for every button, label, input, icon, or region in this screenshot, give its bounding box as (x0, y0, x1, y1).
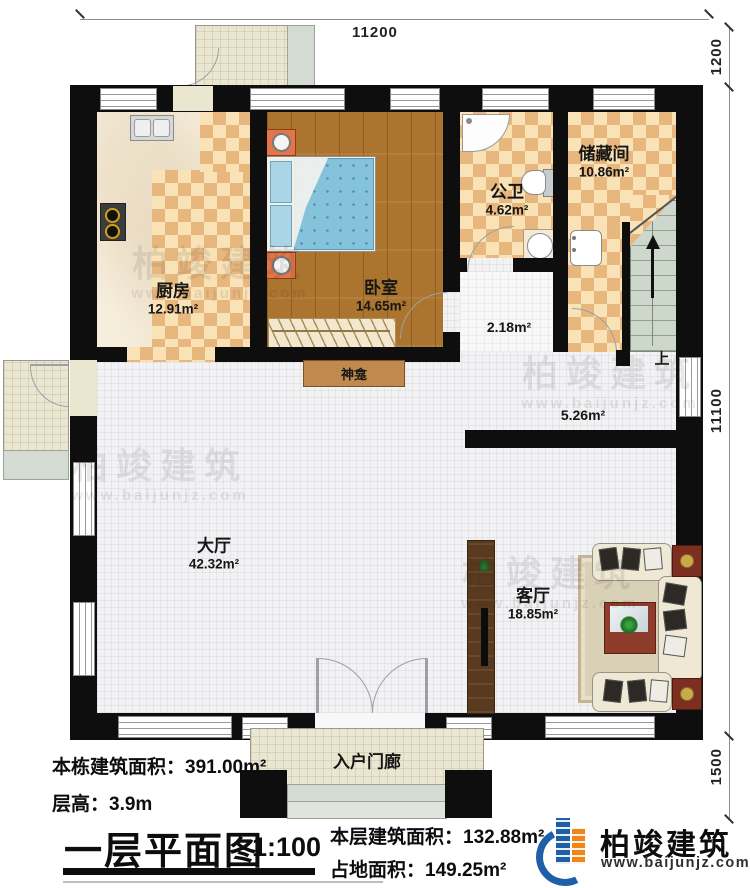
sofa-pillow (662, 582, 687, 606)
room-label-storage: 储藏间 10.86m² (579, 144, 630, 179)
room-label-kitchen: 厨房 12.91m² (148, 281, 198, 316)
wall-kitchen-bedroom (250, 112, 267, 347)
footprint-area-text: 占地面积：149.25m² (330, 855, 506, 882)
side-door-opening (70, 360, 97, 416)
window (100, 88, 157, 110)
room-label-bedroom: 卧室 14.65m² (356, 278, 406, 313)
brand-website: www.baijunjz.com (601, 855, 750, 871)
plan-title: 一层平面图 (64, 820, 264, 875)
sofa-pillow (603, 679, 624, 703)
side-porch-step (3, 450, 69, 480)
window (593, 88, 655, 110)
logo-building-blue (556, 818, 570, 864)
wall-storage-bottom (616, 350, 630, 366)
window (118, 716, 232, 738)
sofa-pillow (643, 547, 663, 570)
dimension-tick (704, 9, 714, 19)
side-door-leaf (30, 364, 68, 366)
back-porch-step (287, 25, 315, 89)
sink-basin (134, 119, 151, 137)
dimension-top-label: 11200 (352, 24, 398, 41)
dimension-line-right (729, 28, 730, 820)
lamp (272, 256, 291, 275)
sofa-pillow (627, 679, 647, 703)
side-table-decor (680, 687, 694, 701)
pillow-blue (270, 161, 292, 203)
window (679, 357, 701, 417)
entry-door-leaf (425, 658, 428, 713)
tv-wall-plant (479, 560, 489, 572)
window (250, 88, 345, 110)
dimension-topright-label: 1200 (708, 38, 725, 75)
living-tv (481, 608, 488, 666)
sofa-pillow (621, 547, 641, 571)
window (73, 602, 95, 676)
wall-hall-living (465, 430, 676, 448)
room-label-hall: 大厅 42.32m² (189, 536, 239, 571)
heater-knob (572, 236, 576, 240)
bathroom-sink (527, 233, 553, 259)
room-label-living: 客厅 18.85m² (508, 586, 558, 621)
entry-step (287, 801, 447, 819)
wall-bedroom-right (443, 332, 460, 362)
side-table-decor (680, 554, 694, 568)
entry-porch-label: 入户门廊 (333, 748, 401, 773)
wardrobe-rod (272, 330, 390, 332)
floor-area-text: 本层建筑面积：132.88m² (330, 822, 544, 849)
building-total-area-text: 本栋建筑面积：391.00m² (52, 752, 266, 779)
room-label-bathroom: 公卫 4.62m² (486, 182, 529, 217)
brand-logo-icon (536, 814, 594, 878)
wall-corridor-storage (553, 272, 568, 352)
shrine-label: 神龛 (341, 364, 367, 383)
plan-scale: 1:100 (252, 832, 321, 863)
sofa-pillow (663, 609, 687, 632)
floor-height-text: 层高：3.9m (52, 789, 152, 816)
floor-plan-canvas: 11200 1200 11100 1500 (0, 0, 750, 888)
kitchen-entry-floor (127, 347, 215, 362)
shrine-table: 神龛 (303, 360, 405, 387)
dimension-bottomright-label: 1500 (708, 748, 725, 785)
kitchen-floor (152, 170, 250, 349)
window (390, 88, 440, 110)
stair-arrow-head (646, 228, 660, 249)
shower-head (466, 118, 472, 124)
dimension-tick (75, 9, 85, 19)
entry-door-leaf (316, 658, 319, 713)
burner (105, 224, 120, 239)
title-underline (63, 868, 315, 875)
sofa-pillow (663, 635, 688, 658)
table-plant (620, 616, 638, 634)
dimension-right-label: 11100 (708, 388, 725, 433)
stair-wall (622, 222, 630, 350)
window (482, 88, 549, 110)
back-door-opening (173, 86, 213, 111)
dimension-line-top (80, 19, 709, 20)
wall-bathroom-storage (553, 112, 568, 272)
lamp (272, 133, 291, 152)
heater-knob (572, 248, 576, 252)
burner (105, 208, 120, 223)
area-label-corridor-small: 2.18m² (487, 319, 531, 335)
wall-interior (97, 347, 127, 362)
corridor-small-floor (460, 272, 553, 352)
sofa-pillow (599, 547, 620, 571)
wall-bathroom-bottom (460, 258, 467, 272)
area-label-corridor-large: 5.26m² (561, 407, 605, 423)
pillow-blue (270, 205, 292, 247)
wall-bedroom-right (443, 112, 460, 292)
sink-basin (153, 119, 170, 137)
stairs-up-label: 上 (654, 348, 669, 369)
sofa-pillow (649, 679, 669, 702)
kitchen-floor (200, 112, 250, 172)
window (545, 716, 655, 738)
wardrobe (268, 318, 396, 348)
window (73, 462, 95, 536)
logo-building-orange (572, 828, 585, 864)
porch-column (445, 770, 492, 818)
